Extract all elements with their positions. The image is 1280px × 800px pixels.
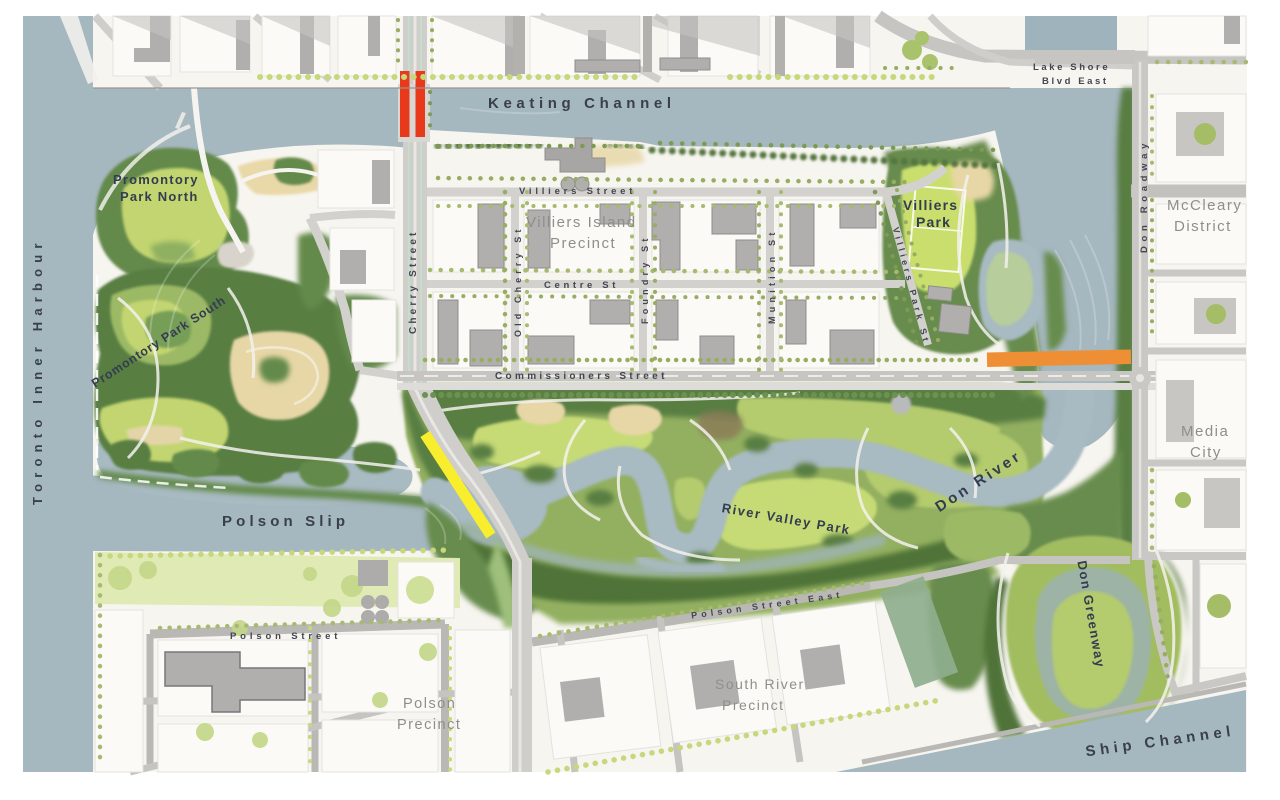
svg-text:District: District <box>1174 218 1232 235</box>
svg-text:McCleary: McCleary <box>1167 197 1242 214</box>
svg-text:Promontory: Promontory <box>113 172 199 187</box>
svg-text:South River: South River <box>715 676 805 692</box>
svg-text:Blvd East: Blvd East <box>1042 76 1109 87</box>
svg-text:Cherry Street: Cherry Street <box>408 230 419 334</box>
svg-text:Villiers Street: Villiers Street <box>519 186 635 197</box>
svg-text:Villiers: Villiers <box>903 197 958 213</box>
svg-text:Park North: Park North <box>120 189 198 204</box>
svg-text:Polson Slip: Polson Slip <box>222 513 350 530</box>
svg-text:Keating Channel: Keating Channel <box>488 95 676 112</box>
svg-text:Polson Street: Polson Street <box>230 631 340 642</box>
svg-text:Toronto Inner Harbour: Toronto Inner Harbour <box>30 239 45 505</box>
svg-text:Villiers Island: Villiers Island <box>526 214 637 231</box>
svg-text:Park: Park <box>916 214 951 230</box>
svg-text:Don Roadway: Don Roadway <box>1139 141 1150 253</box>
svg-text:Commissioners Street: Commissioners Street <box>495 371 667 382</box>
svg-text:Munition St: Munition St <box>767 230 777 324</box>
svg-text:City: City <box>1190 444 1222 461</box>
svg-text:Media: Media <box>1181 423 1229 440</box>
svg-text:Precinct: Precinct <box>550 235 616 252</box>
svg-text:Precinct: Precinct <box>397 717 461 733</box>
svg-text:Foundry St: Foundry St <box>640 236 650 324</box>
svg-text:Precinct: Precinct <box>722 697 785 713</box>
svg-text:Centre St: Centre St <box>544 280 618 291</box>
svg-text:Lake Shore: Lake Shore <box>1033 62 1110 73</box>
svg-text:Polson: Polson <box>403 696 456 712</box>
